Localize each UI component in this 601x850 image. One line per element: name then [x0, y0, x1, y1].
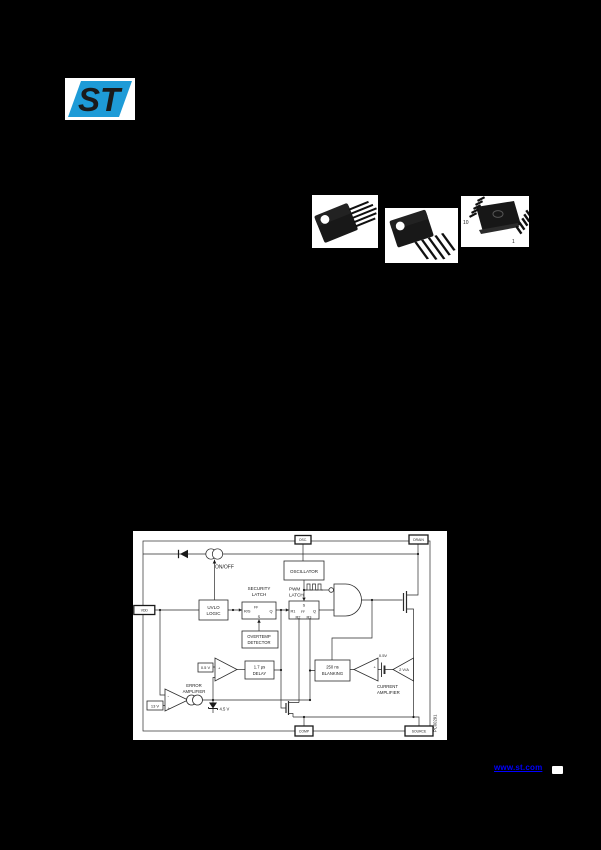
sec-s-label: S — [258, 614, 261, 619]
pad-comp-label: COMP — [299, 730, 310, 734]
sec-q-label: Q — [270, 609, 273, 614]
pwm-r1-label: R1 — [291, 609, 296, 614]
pwm-r3-label: R3 — [307, 614, 312, 619]
ref-05v-label: 0.5 V — [201, 665, 211, 670]
pso-pin10-label: 10 — [463, 220, 469, 226]
pwm-ff-label: FF — [301, 610, 305, 614]
and-gate — [329, 584, 362, 616]
pentawatt-package-angled — [312, 195, 378, 248]
pad-drain-label: DRAIN — [413, 538, 424, 542]
error-amp-label-2: AMPLIFIER — [183, 689, 206, 694]
blanking-label-1: 250 ns — [326, 665, 339, 670]
pentawatt-front-drawing — [385, 208, 458, 263]
zener-label: 4.5 V — [220, 707, 230, 712]
pwm-latch-title-1: PWM — [289, 587, 300, 592]
ref-13v-label: 13 V — [151, 703, 160, 708]
page-number-fragment — [552, 766, 563, 774]
st-logo-letters: ST — [78, 81, 123, 118]
arrow-up — [213, 560, 217, 564]
diagram-code: PC00291 — [433, 714, 438, 732]
pad-vdd-label: VDD — [141, 609, 149, 613]
st-website-link[interactable]: www.st.com — [494, 763, 554, 774]
security-latch-title-2: LATCH — [252, 592, 266, 597]
current-comparator — [354, 658, 378, 681]
uvlo-label-2: LOGIC — [206, 611, 221, 616]
pwm-latch-title-2: LATCH — [289, 592, 304, 597]
current-amp-label-2: AMPLIFIER — [377, 690, 400, 695]
pentawatt-angled-drawing — [312, 195, 378, 248]
pso-pin1-label: 1 — [512, 239, 515, 245]
sec-ff-label: FF — [254, 606, 258, 610]
uvlo-block — [199, 600, 228, 620]
pwm-q-label: Q — [313, 609, 316, 614]
uvlo-label-1: UVLO — [207, 605, 220, 610]
error-current-source-2 — [193, 695, 203, 705]
gain-label: 2 V/A — [399, 667, 409, 672]
datasheet-page: { "page": { "background": "#000000" }, "… — [0, 0, 601, 850]
block-diagram-drawing: ON/OFF OSC. DRAIN VDD COMP SOURCE OSCILL… — [133, 531, 447, 740]
on-off-label: ON/OFF — [215, 565, 234, 571]
current-amp-label-1: CURRENT — [377, 684, 398, 689]
pwm-r2-label: R2 — [296, 614, 301, 619]
error-amp-label-1: ERROR — [186, 683, 202, 688]
powerso10-drawing: 10 1 — [461, 196, 529, 247]
security-latch-title-1: SECURITY — [248, 586, 271, 591]
pwm-s-label: S — [303, 603, 306, 608]
pad-osc-label: OSC. — [299, 538, 307, 542]
inverter-bubble — [329, 588, 334, 593]
delay-label-2: DELAY — [253, 671, 267, 676]
on-off-current-source — [206, 549, 223, 559]
st-logo-box: ST — [65, 78, 135, 120]
pentawatt-package-front — [385, 208, 458, 263]
overtemp-label-1: OVERTEMP — [247, 634, 271, 639]
blanking-label-2: BLANKING — [322, 671, 343, 676]
st-logo: ST — [65, 78, 135, 120]
zener-diode — [209, 703, 218, 710]
rs-label: R/S — [244, 609, 251, 614]
oscillator-label: OSCILLATOR — [290, 569, 319, 574]
bat-05v-label: 0.5V — [379, 653, 388, 658]
overtemp-label-2: DETECTOR — [248, 640, 271, 645]
delay-label-1: 1.7 μs — [254, 665, 266, 670]
powerso10-package: 10 1 — [461, 196, 529, 247]
pad-source-label: SOURCE — [412, 730, 427, 734]
block-diagram: ON/OFF OSC. DRAIN VDD COMP SOURCE OSCILL… — [133, 531, 447, 740]
